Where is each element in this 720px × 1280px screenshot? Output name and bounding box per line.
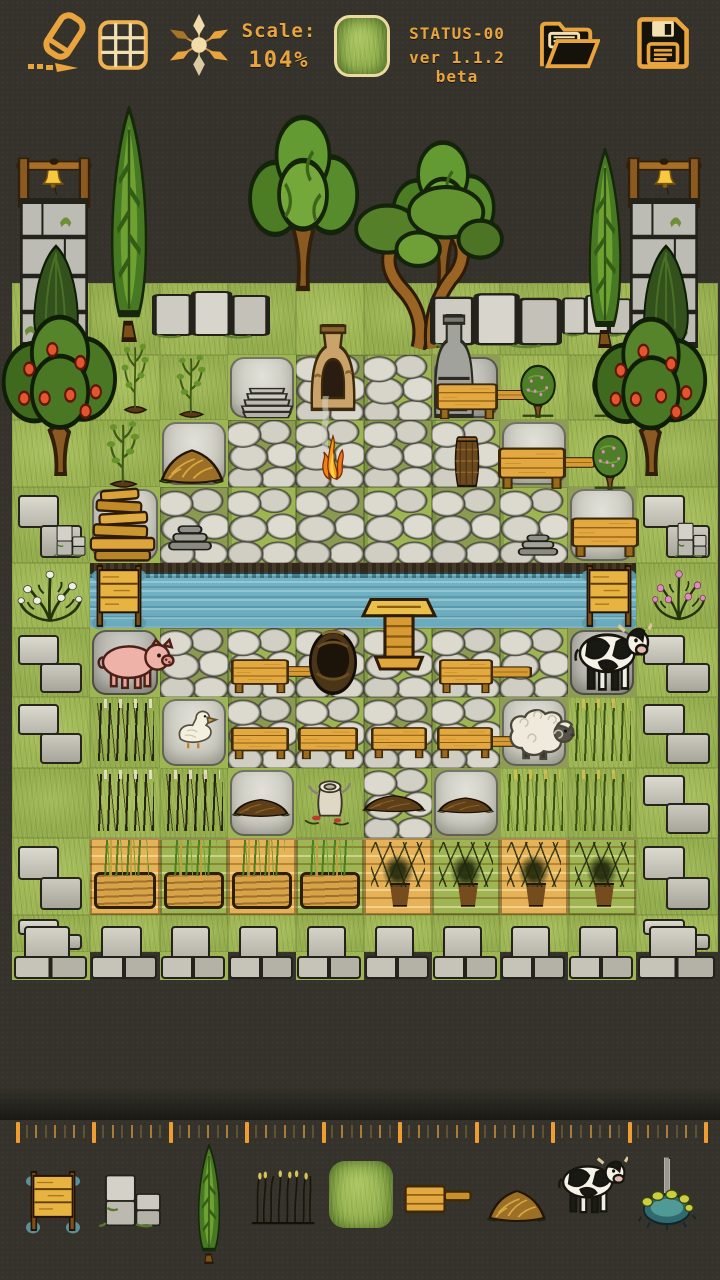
map-tile-stone-blocks[interactable] <box>12 628 90 697</box>
map-tile-cobblestone[interactable] <box>364 628 432 697</box>
palette-item-cow[interactable] <box>556 1154 628 1216</box>
map-tile-cobblestone[interactable] <box>228 420 296 487</box>
map-tile-cobblestone[interactable] <box>364 355 432 420</box>
map-tile-grass[interactable] <box>160 355 228 420</box>
map-tile-cobblestone[interactable] <box>432 697 500 768</box>
map-tile-grass[interactable] <box>90 355 160 420</box>
map-tile-water[interactable] <box>364 563 432 628</box>
map-tile-water[interactable] <box>500 563 568 628</box>
map-tile-stone-slab[interactable] <box>160 697 228 768</box>
map-tile-stone-wall-row[interactable] <box>364 952 432 980</box>
map-tile-grass[interactable] <box>12 355 90 420</box>
ruler-major-tick <box>245 1122 249 1143</box>
ruler-minor-tick <box>494 1125 496 1138</box>
map-tile-grass[interactable] <box>12 420 90 487</box>
map-tile-planter-wheat[interactable] <box>160 838 228 915</box>
map-tile-stone-blocks[interactable] <box>636 697 718 768</box>
map-tile-stone-blocks[interactable] <box>12 487 90 563</box>
map-tile-stone-slab[interactable] <box>228 768 296 838</box>
ruler-major-tick <box>16 1122 20 1143</box>
palette-item-table-with-plank[interactable] <box>404 1182 472 1216</box>
map-tile-stone-blocks[interactable] <box>636 768 718 838</box>
ruler-minor-tick <box>599 1125 601 1138</box>
ruler-minor-tick <box>179 1125 181 1138</box>
ruler-minor-tick <box>83 1125 85 1138</box>
map-tile-stone-slab[interactable] <box>432 768 500 838</box>
map-tile-cobblestone[interactable] <box>432 487 500 563</box>
map-tile-cobblestone[interactable] <box>364 697 432 768</box>
map-tile-cobblestone[interactable] <box>160 487 228 563</box>
map-tile-grass[interactable] <box>636 355 718 420</box>
ruler-minor-tick <box>265 1125 267 1138</box>
ruler-minor-tick <box>150 1125 152 1138</box>
map-tile-green-reeds[interactable] <box>568 768 636 838</box>
ruler-minor-tick <box>64 1125 66 1138</box>
ruler-minor-tick <box>695 1125 697 1138</box>
ruler-minor-tick <box>370 1125 372 1138</box>
map-tile-dark-slab[interactable] <box>432 355 500 420</box>
map-tile-grass[interactable] <box>636 420 718 487</box>
ruler-minor-tick <box>657 1125 659 1138</box>
ruler-minor-tick <box>131 1125 133 1138</box>
ruler-minor-tick <box>523 1125 525 1138</box>
map-tile-grass[interactable] <box>228 283 296 355</box>
ruler-minor-tick <box>45 1125 47 1138</box>
map-tile-cobblestone[interactable] <box>296 628 364 697</box>
map-tile-dark-reeds[interactable] <box>90 768 160 838</box>
map-tile-cobblestone[interactable] <box>296 355 364 420</box>
map-tile-planter-potted-plant[interactable] <box>432 838 500 915</box>
ruler-minor-tick <box>590 1125 592 1138</box>
map-tile-stone-slab[interactable] <box>90 487 160 563</box>
ruler-major-tick <box>628 1122 632 1143</box>
ruler-minor-tick <box>446 1125 448 1138</box>
ruler-minor-tick <box>465 1125 467 1138</box>
map-tile-planter-potted-plant[interactable] <box>364 838 432 915</box>
map-tile-cobblestone[interactable] <box>500 628 568 697</box>
map-tile-grass[interactable] <box>90 420 160 487</box>
ruler-minor-tick <box>274 1125 276 1138</box>
ruler-minor-tick <box>140 1125 142 1138</box>
map-tile-planter-potted-plant[interactable] <box>568 838 636 915</box>
ruler-minor-tick <box>484 1125 486 1138</box>
map-tile-grass[interactable] <box>500 355 568 420</box>
ruler-minor-tick <box>293 1125 295 1138</box>
ruler-minor-tick <box>561 1125 563 1138</box>
map-tile-stone-wall-row[interactable] <box>296 952 364 980</box>
map-tile-stone-wall-row[interactable] <box>12 952 90 980</box>
map-tile-stone-blocks[interactable] <box>12 697 90 768</box>
map-tile-stone-wall-row[interactable] <box>228 952 296 980</box>
map-tile-water[interactable] <box>90 563 160 628</box>
ruler-major-tick <box>551 1122 555 1143</box>
ruler-major-tick <box>704 1122 708 1143</box>
palette-ruler[interactable] <box>0 1120 720 1146</box>
palette-item-stone-blocks[interactable] <box>98 1172 164 1230</box>
ruler-minor-tick <box>389 1125 391 1138</box>
ruler-minor-tick <box>102 1125 104 1138</box>
map-tile-water[interactable] <box>296 563 364 628</box>
ruler-major-tick <box>92 1122 96 1143</box>
ruler-major-tick <box>398 1122 402 1143</box>
palette-item-water-gate[interactable] <box>26 1168 80 1234</box>
ruler-minor-tick <box>207 1125 209 1138</box>
map-tile-grass[interactable] <box>500 283 568 355</box>
map-tile-green-reeds[interactable] <box>568 697 636 768</box>
map-tile-grass[interactable] <box>568 420 636 487</box>
ruler-minor-tick <box>351 1125 353 1138</box>
map-tile-planter-potted-plant[interactable] <box>500 838 568 915</box>
ruler-minor-tick <box>456 1125 458 1138</box>
ruler-minor-tick <box>570 1125 572 1138</box>
palette-item-fountain[interactable] <box>638 1156 696 1230</box>
map-tile-planter-wheat[interactable] <box>296 838 364 915</box>
map-tile-planter-wheat[interactable] <box>90 838 160 915</box>
ruler-minor-tick <box>437 1125 439 1138</box>
map-tile-grass[interactable] <box>12 283 90 355</box>
map-tile-cobblestone[interactable] <box>228 697 296 768</box>
map-tile-cobblestone[interactable] <box>228 628 296 697</box>
map-tile-cobblestone[interactable] <box>364 487 432 563</box>
ruler-minor-tick <box>685 1125 687 1138</box>
map-tile-stone-wall-row[interactable] <box>160 952 228 980</box>
ruler-minor-tick <box>666 1125 668 1138</box>
map-tile-stone-slab[interactable] <box>500 697 568 768</box>
palette-item-cypress-tree[interactable] <box>184 1144 234 1264</box>
ruler-minor-tick <box>236 1125 238 1138</box>
map-tile-cobblestone[interactable] <box>364 768 432 838</box>
map-tile-grass[interactable] <box>296 283 364 355</box>
ruler-minor-tick <box>198 1125 200 1138</box>
map-tile-grass[interactable] <box>160 283 228 355</box>
ruler-shadow <box>0 1086 720 1120</box>
map-tile-cobblestone[interactable] <box>432 420 500 487</box>
ruler-minor-tick <box>112 1125 114 1138</box>
map-tile-grass[interactable] <box>12 768 90 838</box>
ruler-major-tick <box>322 1122 326 1143</box>
ruler-minor-tick <box>676 1125 678 1138</box>
ruler-minor-tick <box>341 1125 343 1138</box>
ruler-minor-tick <box>26 1125 28 1138</box>
ruler-minor-tick <box>54 1125 56 1138</box>
app-root: { "app": { "bg_color": "#34322a", "accen… <box>0 0 720 1280</box>
ruler-minor-tick <box>513 1125 515 1138</box>
map-tile-stone-blocks[interactable] <box>636 838 718 915</box>
map-tile-dark-reeds[interactable] <box>160 768 228 838</box>
map-tile-water[interactable] <box>568 563 636 628</box>
map-tile-water[interactable] <box>228 563 296 628</box>
ruler-minor-tick <box>360 1125 362 1138</box>
map-tile-cobblestone[interactable] <box>296 487 364 563</box>
map-tile-stone-slab[interactable] <box>500 420 568 487</box>
map-tile-grass[interactable] <box>636 563 718 628</box>
ruler-minor-tick <box>504 1125 506 1138</box>
ruler-minor-tick <box>73 1125 75 1138</box>
map-tile-cobblestone[interactable] <box>296 697 364 768</box>
ruler-minor-tick <box>609 1125 611 1138</box>
ruler-minor-tick <box>647 1125 649 1138</box>
ruler-minor-tick <box>408 1125 410 1138</box>
ruler-minor-tick <box>618 1125 620 1138</box>
map-tile-stone-slab[interactable] <box>160 420 228 487</box>
map-tile-grass[interactable] <box>568 283 636 355</box>
map-tile-stone-wall-row[interactable] <box>500 952 568 980</box>
palette-item-grass-tile[interactable] <box>329 1161 393 1228</box>
palette-item-dark-reeds[interactable] <box>249 1168 317 1226</box>
map-tile-dark-slab[interactable] <box>90 628 160 697</box>
map-tile-stone-wall-row[interactable] <box>636 952 718 980</box>
map-tile-cobblestone[interactable] <box>432 628 500 697</box>
map-tile-grass[interactable] <box>12 563 90 628</box>
ruler-minor-tick <box>427 1125 429 1138</box>
ruler-minor-tick <box>312 1125 314 1138</box>
map-tile-grass[interactable] <box>636 283 718 355</box>
map-tile-grass[interactable] <box>432 283 500 355</box>
ruler-minor-tick <box>580 1125 582 1138</box>
map-tile-stone-slab[interactable] <box>228 355 296 420</box>
ruler-minor-tick <box>284 1125 286 1138</box>
map-tile-cobblestone[interactable] <box>364 420 432 487</box>
ruler-minor-tick <box>159 1125 161 1138</box>
map-tile-green-reeds[interactable] <box>500 768 568 838</box>
map-tile-grass[interactable] <box>296 768 364 838</box>
map-tile-grass[interactable] <box>568 355 636 420</box>
ruler-minor-tick <box>35 1125 37 1138</box>
map-tile-dark-slab[interactable] <box>568 628 636 697</box>
map-tile-stone-blocks[interactable] <box>12 838 90 915</box>
ruler-minor-tick <box>331 1125 333 1138</box>
ruler-minor-tick <box>255 1125 257 1138</box>
map-tile-stone-wall-row[interactable] <box>432 952 500 980</box>
map-tile-grass[interactable] <box>90 283 160 355</box>
ruler-minor-tick <box>542 1125 544 1138</box>
map-tile-stone-blocks[interactable] <box>636 487 718 563</box>
map-tile-cobblestone[interactable] <box>296 420 364 487</box>
map-tile-cobblestone[interactable] <box>500 487 568 563</box>
ruler-minor-tick <box>188 1125 190 1138</box>
ruler-major-tick <box>169 1122 173 1143</box>
ruler-minor-tick <box>121 1125 123 1138</box>
map-tile-water[interactable] <box>432 563 500 628</box>
ruler-major-tick <box>475 1122 479 1143</box>
ruler-minor-tick <box>637 1125 639 1138</box>
map-tile-stone-wall-row[interactable] <box>568 952 636 980</box>
ruler-minor-tick <box>217 1125 219 1138</box>
map-tile-stone-slab[interactable] <box>568 487 636 563</box>
ruler-minor-tick <box>379 1125 381 1138</box>
map-tile-grass[interactable] <box>364 283 432 355</box>
ruler-minor-tick <box>226 1125 228 1138</box>
ruler-minor-tick <box>303 1125 305 1138</box>
palette-item-hay-mound[interactable] <box>486 1174 548 1224</box>
map-tile-cobblestone[interactable] <box>160 628 228 697</box>
map-tile-stone-wall-row[interactable] <box>90 952 160 980</box>
map-tile-stone-blocks[interactable] <box>636 628 718 697</box>
map-tile-dark-reeds[interactable] <box>90 697 160 768</box>
map-tile-planter-wheat[interactable] <box>228 838 296 915</box>
ruler-minor-tick <box>532 1125 534 1138</box>
ruler-minor-tick <box>418 1125 420 1138</box>
map-tile-water[interactable] <box>160 563 228 628</box>
map-tile-cobblestone[interactable] <box>228 487 296 563</box>
